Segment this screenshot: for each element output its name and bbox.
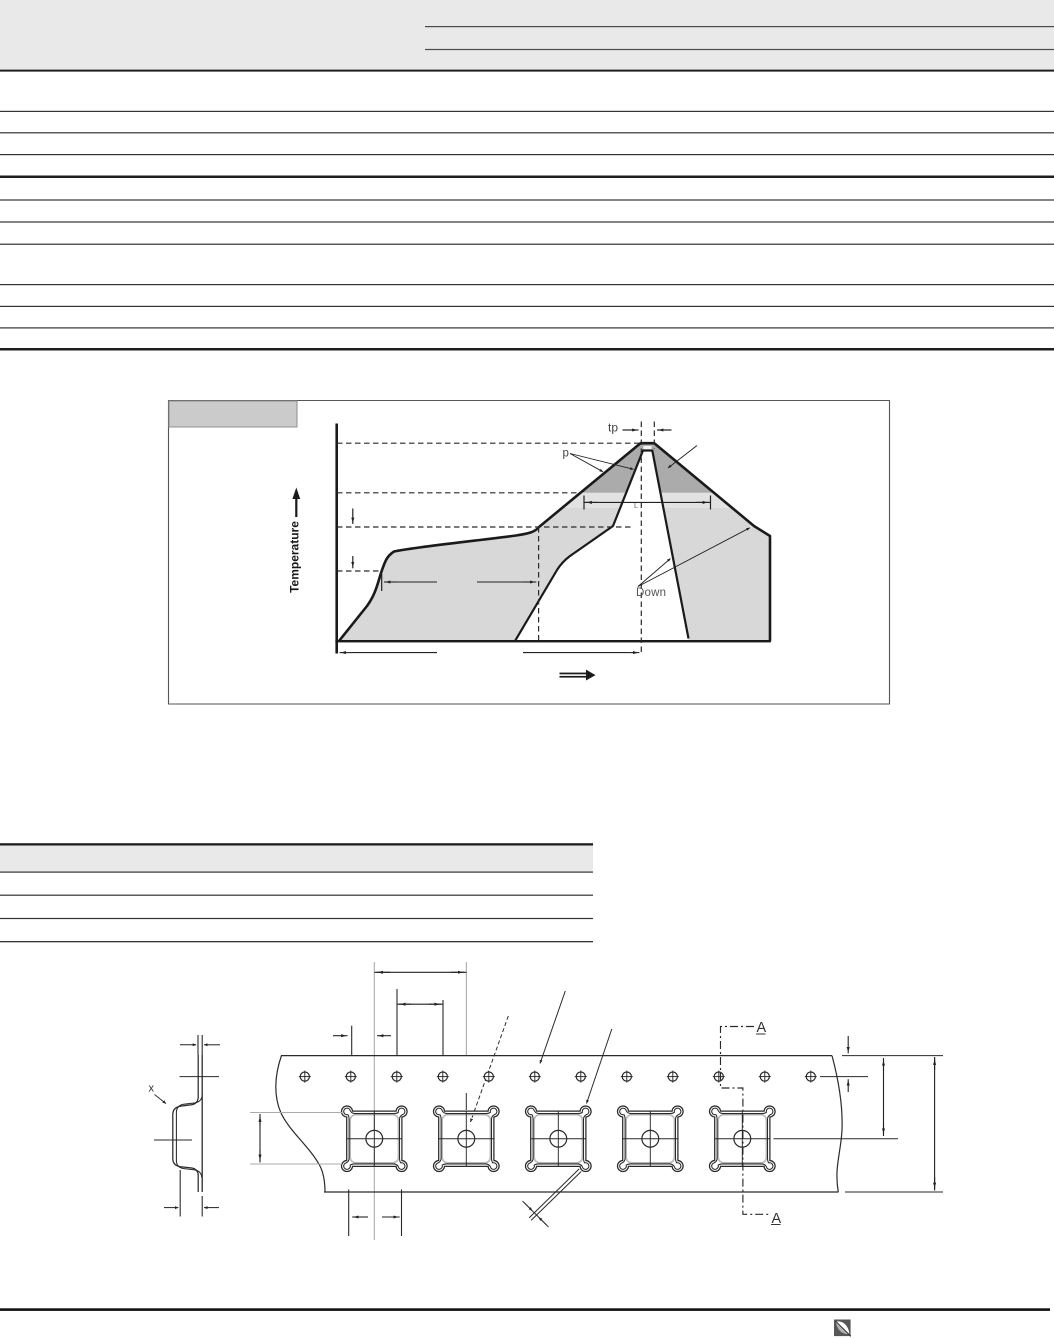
svg-text:p: p [563, 447, 569, 459]
svg-text:x: x [149, 1083, 155, 1095]
svg-text:Down: Down [636, 587, 666, 599]
svg-text:L: L [634, 501, 638, 510]
svg-text:Temperature: Temperature [288, 521, 302, 593]
svg-text:tp: tp [608, 420, 618, 434]
